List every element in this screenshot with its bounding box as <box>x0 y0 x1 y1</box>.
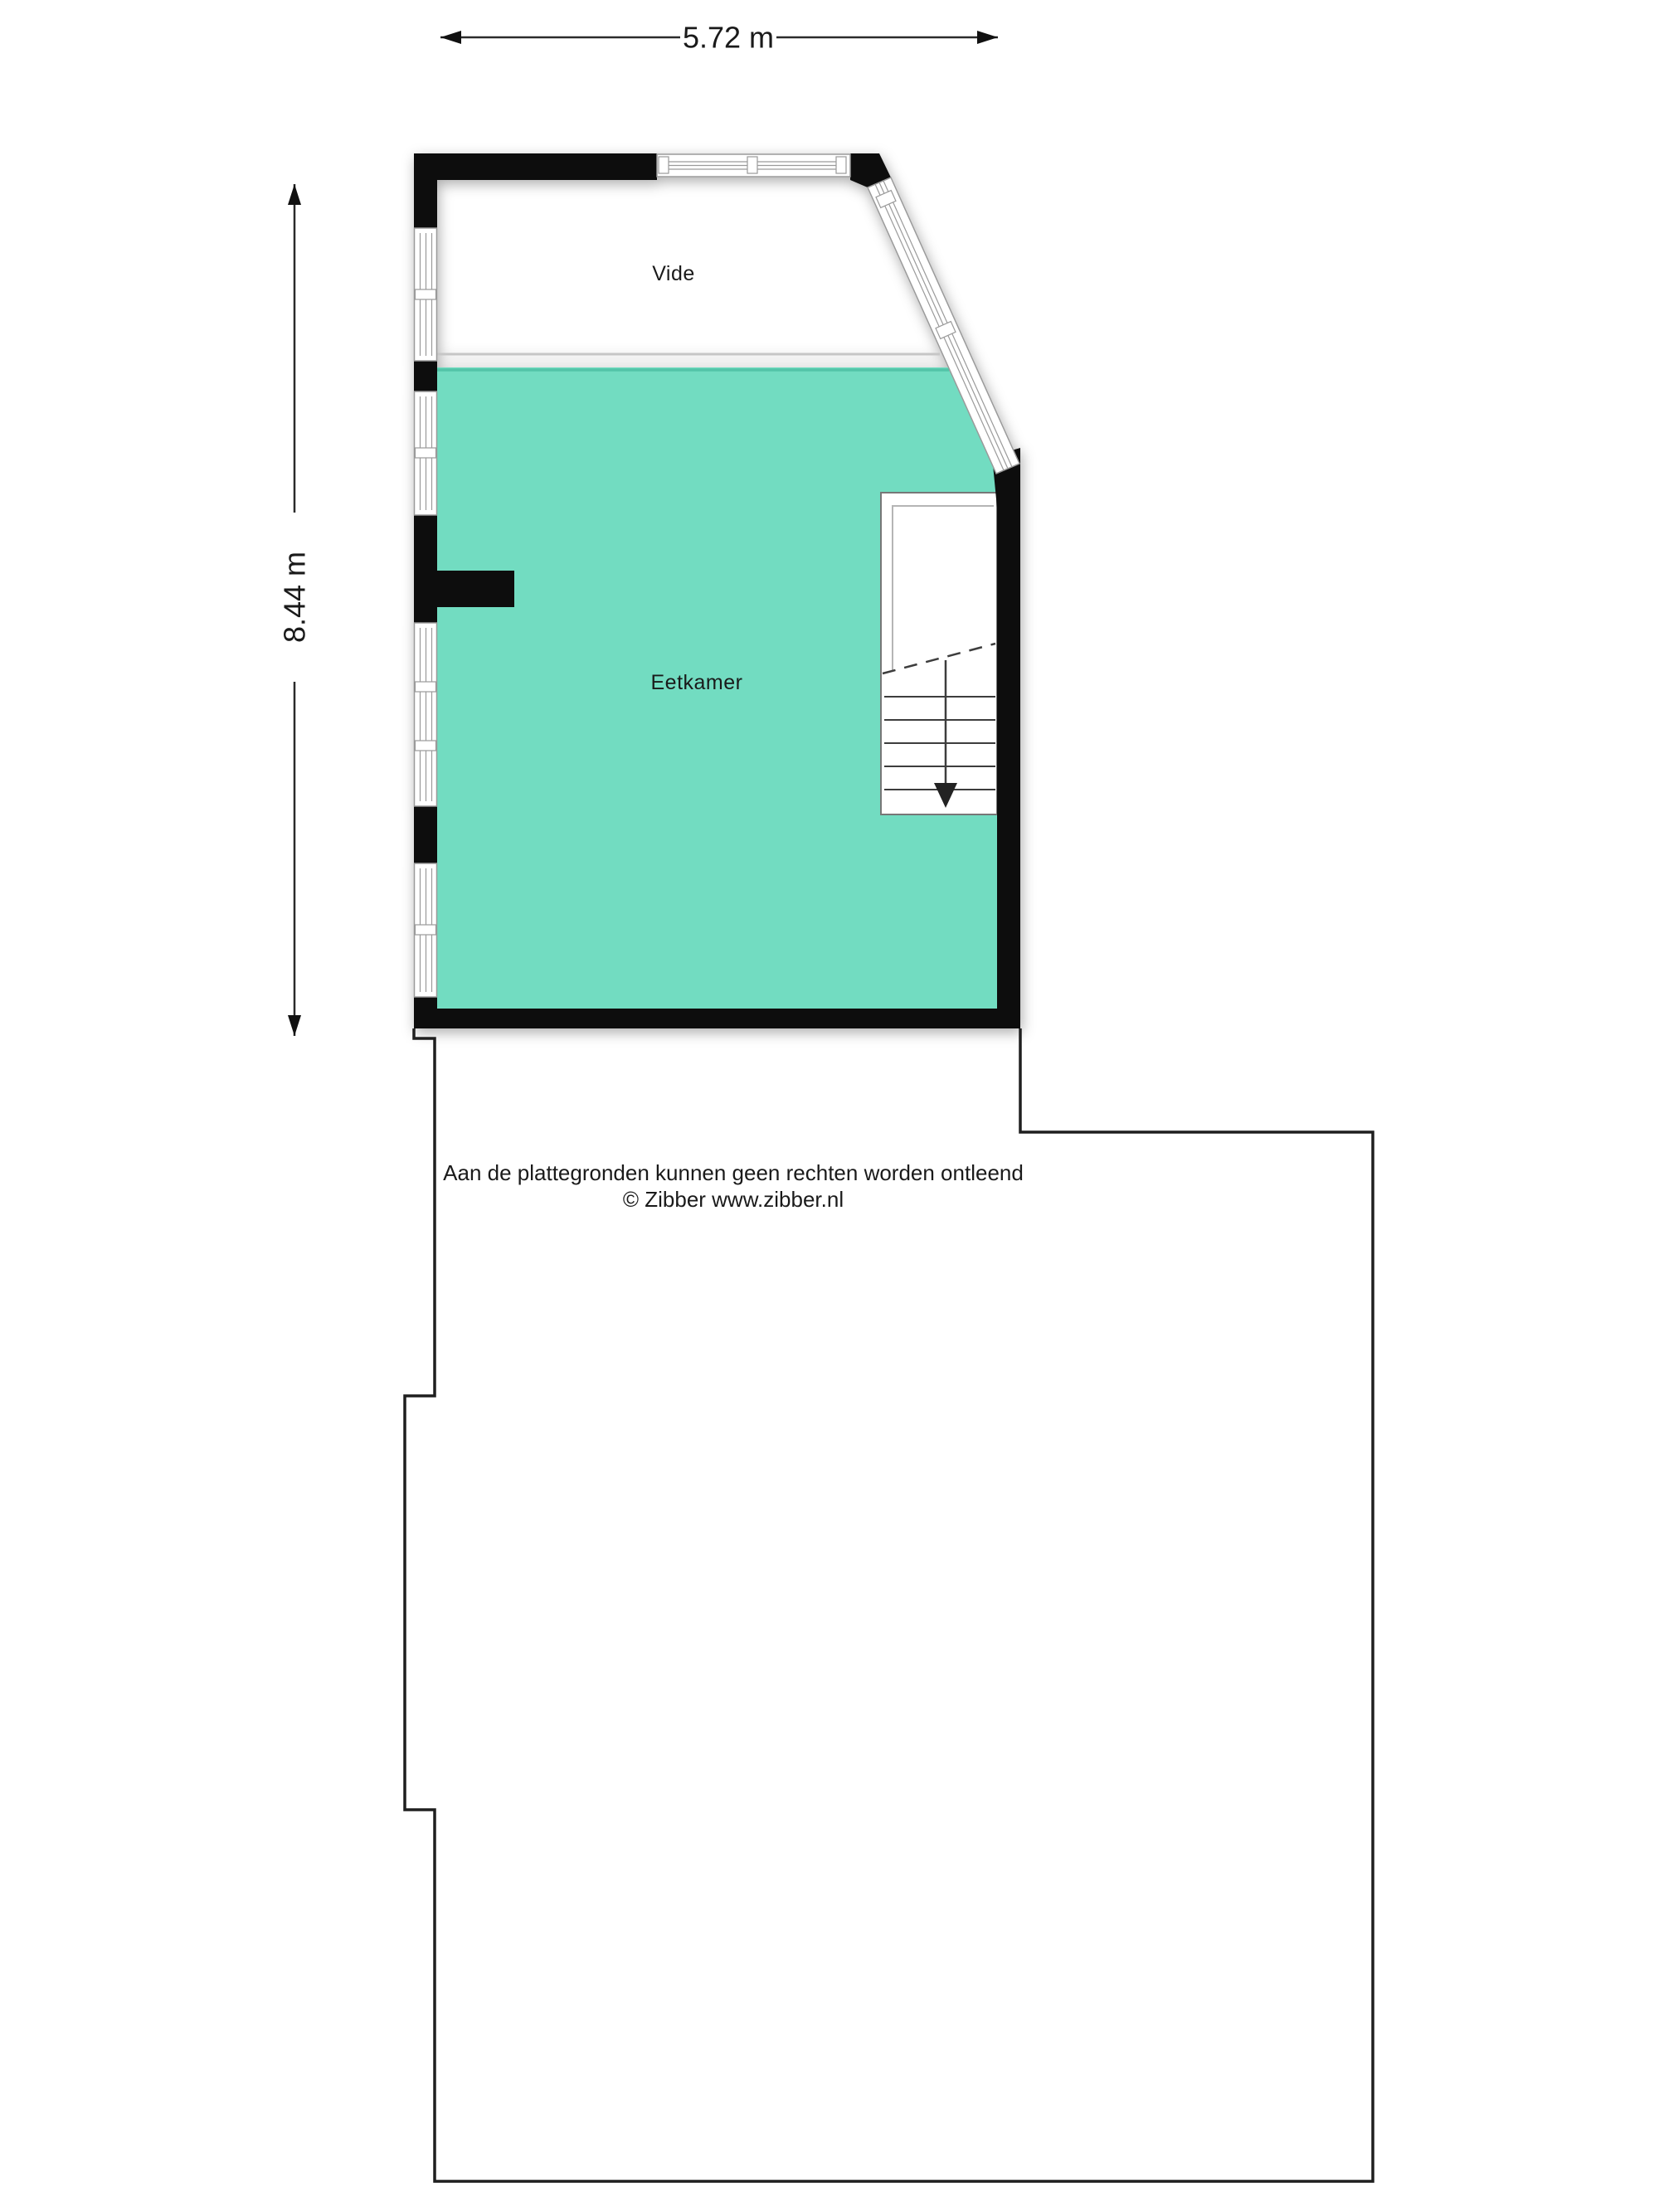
disclaimer-line1: Aan de plattegronden kunnen geen rechten… <box>443 1160 1024 1185</box>
width-dimension-label: 5.72 m <box>683 21 774 55</box>
eetkamer-label: Eetkamer <box>651 671 743 694</box>
window-divider <box>416 682 436 692</box>
window-left-1 <box>415 228 437 361</box>
arrow-down-icon <box>288 1015 301 1036</box>
wall-left-segment <box>414 153 437 228</box>
arrow-left-icon <box>440 31 461 44</box>
wall-bottom <box>414 1009 1020 1028</box>
window-divider <box>836 157 846 173</box>
window-top <box>657 154 850 177</box>
arrow-right-icon <box>977 31 998 44</box>
wall-interior-stub <box>437 571 514 607</box>
floorplan <box>414 153 1020 1028</box>
vide-label: Vide <box>652 262 695 285</box>
window-left-2 <box>415 391 437 515</box>
wall-left-segment <box>414 515 437 623</box>
wall-right <box>997 498 1020 1028</box>
window-divider <box>747 157 757 173</box>
arrow-up-icon <box>288 184 301 205</box>
wall-left-segment <box>414 806 437 863</box>
staircase <box>881 493 997 814</box>
window-divider <box>659 157 669 173</box>
height-dimension-label: 8.44 m <box>278 552 312 643</box>
window-divider <box>416 448 436 458</box>
ground-floor-outline <box>405 1028 1373 2181</box>
width-dimension: 5.72 m <box>440 21 998 55</box>
wall-top <box>414 153 657 180</box>
window-divider <box>416 925 436 935</box>
height-dimension: 8.44 m <box>278 184 312 1036</box>
floorplan-svg: 5.72 m 8.44 m <box>0 0 1659 2212</box>
window-left-3 <box>415 623 437 806</box>
window-divider <box>416 741 436 751</box>
window-divider <box>416 289 436 299</box>
disclaimer-line2: © Zibber www.zibber.nl <box>623 1187 844 1212</box>
floorplan-canvas: 5.72 m 8.44 m <box>0 0 1659 2212</box>
wall-left-segment <box>414 361 437 391</box>
window-left-4 <box>415 863 437 997</box>
wall-left-segment <box>414 997 437 1028</box>
